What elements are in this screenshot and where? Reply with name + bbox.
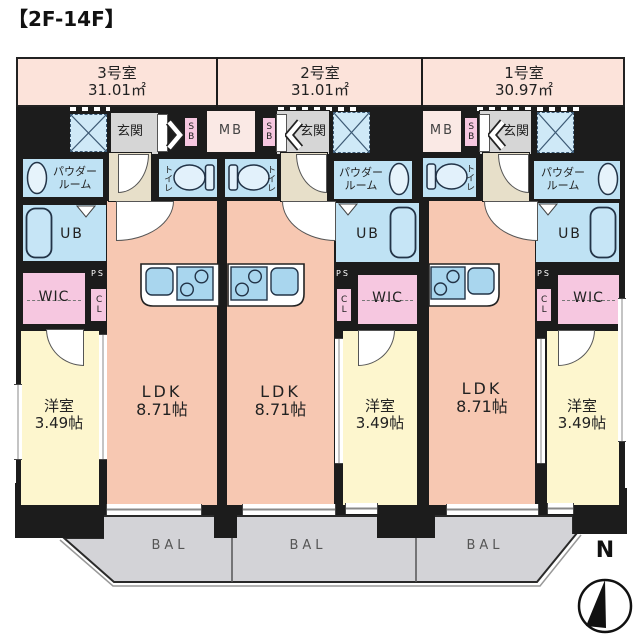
meter-box-mb: MB	[422, 110, 462, 153]
ldk-name: LDK	[462, 380, 503, 398]
bedroom-size: 3.49帖	[558, 415, 606, 432]
ldk-size: 8.71帖	[255, 401, 307, 419]
ldk-name: LDK	[260, 383, 301, 401]
bath-door-icon	[338, 203, 358, 216]
sink-icon	[26, 161, 48, 195]
powder-line2: ルーム	[59, 179, 92, 192]
bathtub-icon	[589, 206, 617, 259]
ldk-name: LDK	[142, 383, 183, 401]
compass-icon	[574, 538, 634, 638]
unit-bath-label: UB	[548, 226, 592, 242]
bathtub-icon	[25, 207, 53, 259]
toilet-label: トイレ	[264, 160, 276, 197]
window	[242, 504, 336, 515]
ldk-room	[226, 200, 335, 506]
kitchen-counter	[227, 263, 305, 309]
balcony-label: BAL	[284, 538, 332, 553]
sliding-door	[99, 334, 107, 460]
wic-label: WIC	[558, 288, 619, 308]
sink-icon	[597, 162, 619, 196]
bedroom-label: 洋室 3.49帖	[341, 392, 419, 438]
bedroom-label: 洋室 3.49帖	[543, 392, 621, 438]
unit-name: 3号室	[97, 65, 137, 82]
bedroom-label: 洋室 3.49帖	[20, 392, 98, 438]
powder-line2: ルーム	[547, 180, 580, 193]
powder-room-label: パウダー ルーム	[335, 163, 387, 197]
shutter-box-sb: SB	[184, 117, 198, 147]
kitchen-counter	[428, 263, 500, 309]
genkan-label: 玄関	[297, 124, 329, 140]
window	[345, 503, 378, 514]
bath-door-icon	[538, 203, 558, 216]
window	[106, 504, 202, 515]
kitchen-counter	[140, 263, 220, 309]
toilet-label: トイレ	[463, 159, 475, 196]
sink-icon	[388, 162, 410, 196]
powder-room-label: パウダー ルーム	[536, 163, 590, 197]
unit-bath-label: UB	[50, 226, 94, 242]
closet-cl: CL	[336, 288, 352, 322]
unit-name: 2号室	[300, 65, 340, 82]
wall-step	[64, 505, 104, 538]
bath-door-icon	[76, 205, 96, 218]
band-divider	[421, 57, 423, 107]
balcony-label: BAL	[461, 538, 509, 553]
floor-plan: 【2F-14F】 3号室 31.01㎡ 2号室 31.01㎡ 1号室 30.97…	[0, 0, 637, 640]
genkan-label: 玄関	[500, 124, 532, 140]
bedroom-name: 洋室	[365, 398, 395, 415]
bathtub-icon	[389, 206, 417, 259]
window	[618, 298, 626, 442]
ldk-label: LDK 8.71帖	[108, 378, 216, 424]
sliding-door	[537, 338, 545, 464]
entrance-door-icon	[166, 119, 184, 151]
ldk-size: 8.71帖	[456, 398, 508, 416]
meter-box-mb: MB	[206, 110, 256, 153]
shaft-hatch	[70, 114, 107, 152]
toilet-icon	[172, 162, 216, 193]
balcony-label: BAL	[146, 538, 194, 553]
genkan-label: 玄関	[112, 124, 148, 140]
unit-area: 31.01㎡	[88, 82, 146, 99]
shaft-hatch	[537, 112, 574, 153]
unit-label-1: 1号室 30.97㎡	[474, 60, 574, 104]
unit-label-3: 3号室 31.01㎡	[67, 60, 167, 104]
band-divider	[216, 57, 218, 107]
ldk-room	[106, 200, 218, 506]
unit-bath-label: UB	[346, 226, 390, 242]
wic-label: WIC	[24, 287, 84, 307]
unit-area: 30.97㎡	[495, 82, 553, 99]
bedroom-name: 洋室	[44, 398, 74, 415]
boundary-dashes	[70, 107, 110, 111]
unit-label-2: 2号室 31.01㎡	[270, 60, 370, 104]
bedroom-size: 3.49帖	[35, 415, 83, 432]
powder-room-label: パウダー ルーム	[48, 162, 102, 196]
unit-area: 31.01㎡	[291, 82, 349, 99]
ldk-room	[428, 200, 536, 506]
sliding-door	[335, 338, 343, 464]
page-title: 【2F-14F】	[8, 3, 125, 32]
shutter-box-sb: SB	[464, 117, 478, 147]
ldk-size: 8.71帖	[136, 401, 188, 419]
window	[547, 503, 574, 514]
ldk-label: LDK 8.71帖	[428, 375, 536, 421]
closet-cl: CL	[536, 288, 552, 322]
window	[14, 384, 22, 460]
unit-name: 1号室	[504, 65, 544, 82]
powder-line2: ルーム	[345, 180, 378, 193]
shaft-hatch	[333, 112, 370, 153]
wic-label: WIC	[358, 288, 417, 308]
shutter-box-sb: SB	[262, 117, 276, 147]
bedroom-size: 3.49帖	[356, 415, 404, 432]
ldk-label: LDK 8.71帖	[226, 378, 335, 424]
window	[446, 504, 539, 515]
bedroom-name: 洋室	[567, 398, 597, 415]
